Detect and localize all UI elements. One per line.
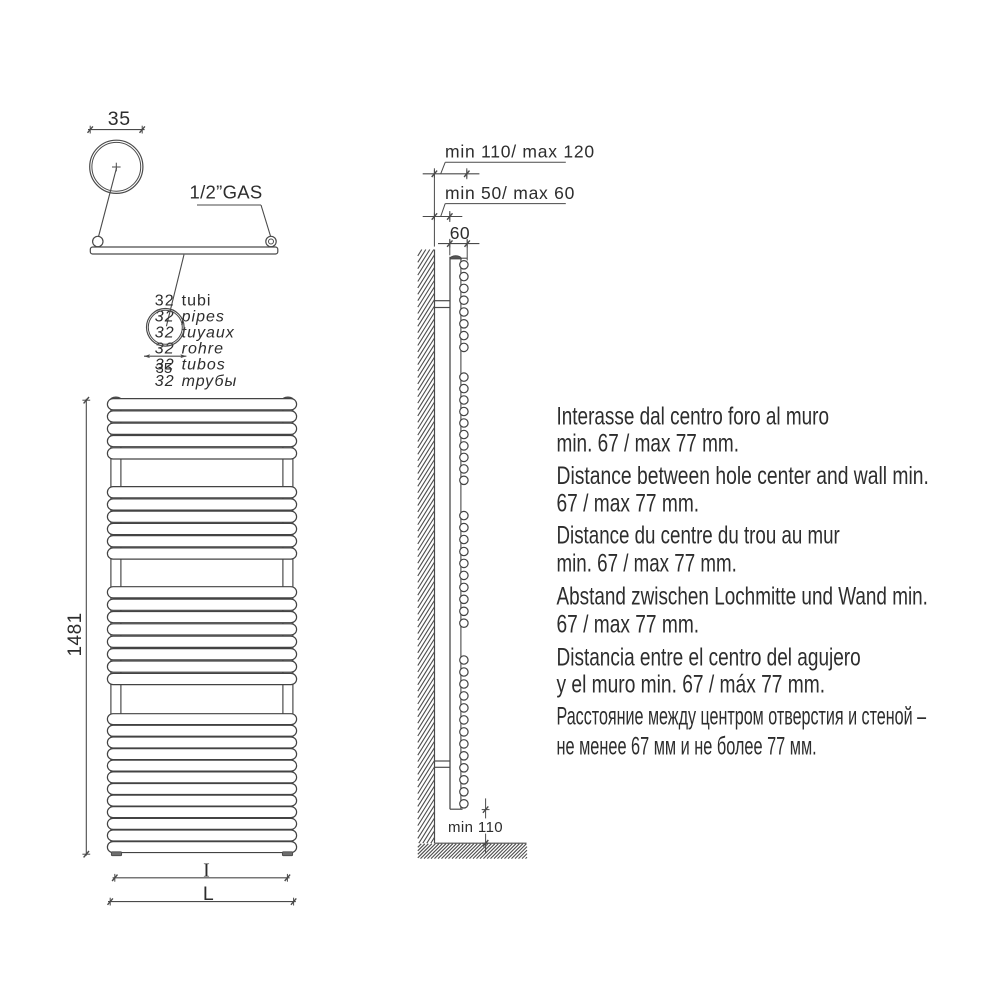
svg-text:32 rohre: 32 rohre (155, 341, 224, 358)
svg-text:32 tubi: 32 tubi (155, 292, 212, 309)
svg-text:Abstand zwischen Lochmitte und: Abstand zwischen Lochmitte und Wand min. (557, 582, 928, 610)
svg-text:1481: 1481 (65, 612, 86, 656)
svg-text:min 110/ max 120: min 110/ max 120 (445, 141, 595, 161)
svg-text:min. 67 / max 77 mm.: min. 67 / max 77 mm. (557, 429, 740, 457)
svg-text:Interasse dal centro foro al m: Interasse dal centro foro al muro (557, 402, 829, 430)
svg-text:Distance du centre du trou au: Distance du centre du trou au mur (557, 521, 840, 549)
svg-text:1/2”GAS: 1/2”GAS (190, 182, 263, 203)
svg-text:y el muro min. 67 / máx 77 mm.: y el muro min. 67 / máx 77 mm. (557, 670, 826, 698)
svg-text:67 / max 77 mm.: 67 / max 77 mm. (557, 610, 700, 638)
svg-text:Расстояние между центром отвер: Расстояние между центром отверстия и сте… (557, 703, 927, 730)
svg-text:32 tuyaux: 32 tuyaux (155, 325, 235, 342)
svg-text:min 110: min 110 (448, 819, 503, 836)
svg-text:не менее 67 мм и не более 77 м: не менее 67 мм и не более 77 мм. (557, 733, 817, 760)
svg-text:35: 35 (108, 108, 131, 130)
svg-text:min. 67 / max 77 mm.: min. 67 / max 77 mm. (557, 549, 737, 577)
svg-text:32 pipes: 32 pipes (155, 308, 225, 325)
svg-text:L: L (203, 883, 214, 905)
svg-text:min 50/ max 60: min 50/ max 60 (445, 183, 575, 203)
svg-text:Distance between hole center a: Distance between hole center and wall mi… (557, 462, 929, 490)
svg-text:I: I (203, 859, 210, 881)
svg-text:Distancia entre el centro del: Distancia entre el centro del agujero (557, 643, 861, 671)
svg-text:67 / max 77 mm.: 67 / max 77 mm. (557, 489, 700, 517)
svg-text:35: 35 (156, 360, 173, 377)
